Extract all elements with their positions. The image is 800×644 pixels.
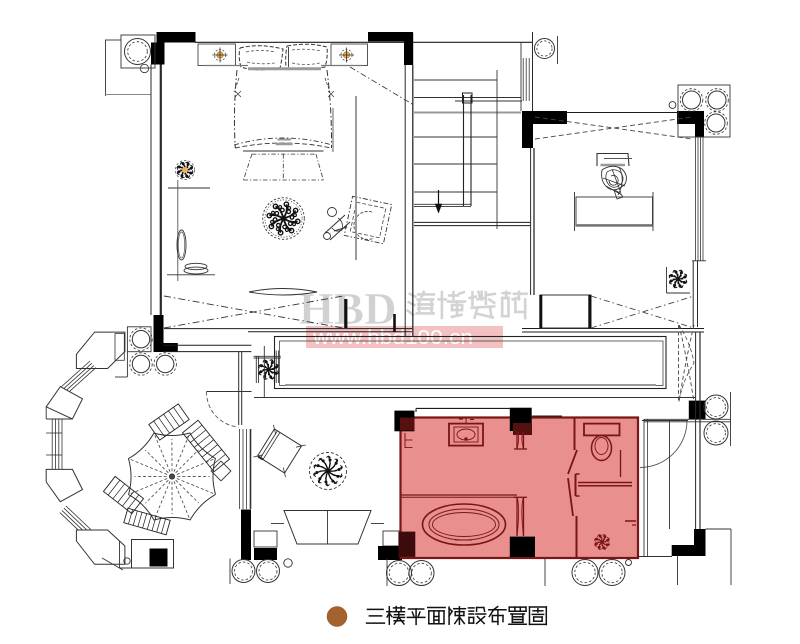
svg-text:www.hbd100.cn: www.hbd100.cn (312, 327, 473, 349)
